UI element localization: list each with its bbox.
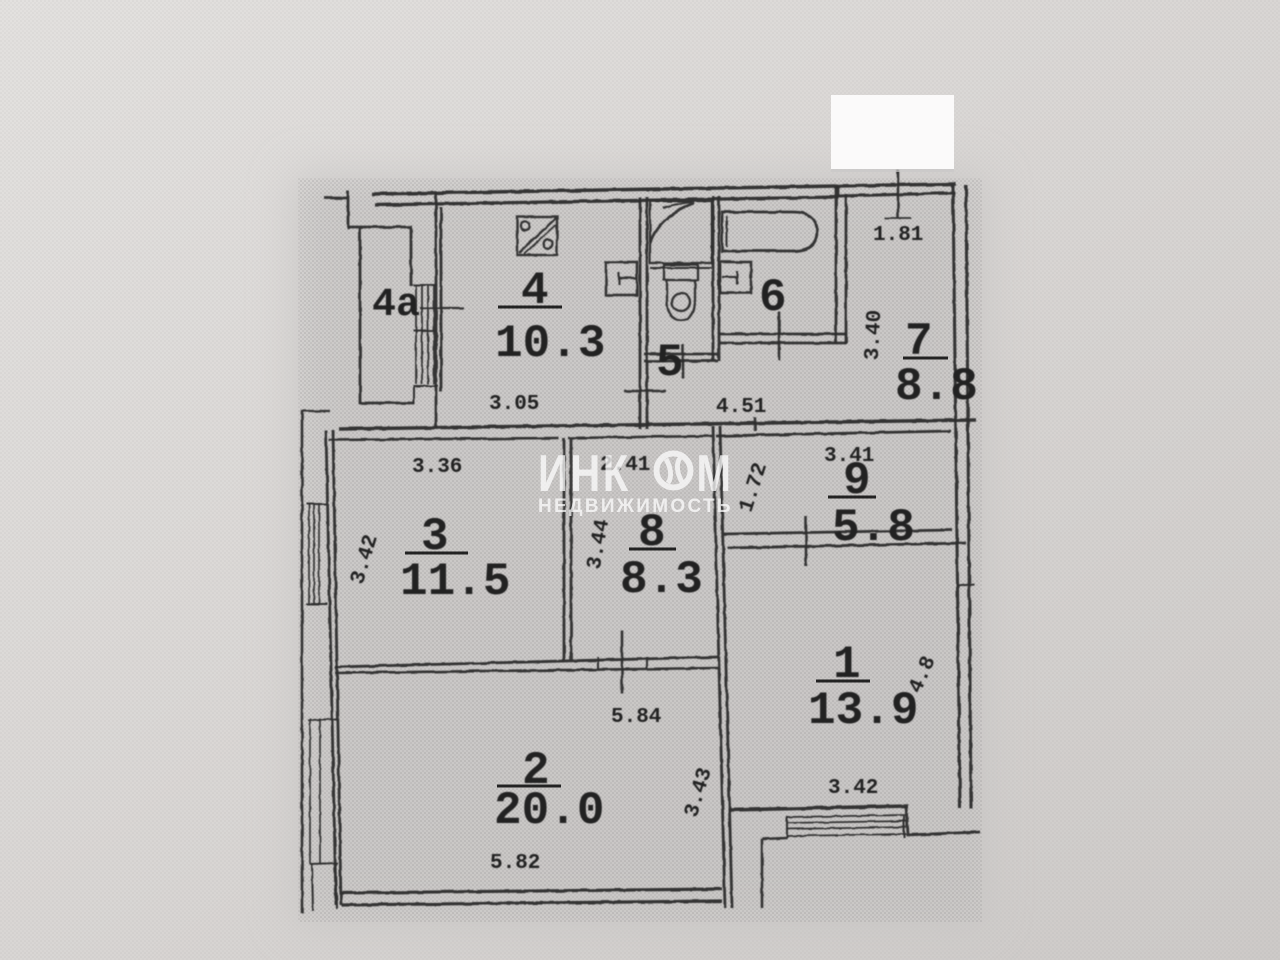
svg-text:3.36: 3.36 (412, 456, 462, 479)
svg-text:5.82: 5.82 (490, 852, 540, 875)
svg-text:8.8: 8.8 (895, 361, 978, 413)
svg-text:11.5: 11.5 (400, 556, 510, 608)
svg-text:4.51: 4.51 (716, 396, 766, 419)
svg-text:3.40: 3.40 (862, 309, 888, 361)
svg-text:4a: 4a (372, 283, 420, 328)
svg-text:20.0: 20.0 (494, 785, 604, 837)
svg-text:13.9: 13.9 (808, 685, 918, 737)
svg-text:5: 5 (656, 337, 684, 389)
svg-text:10.3: 10.3 (495, 318, 605, 370)
svg-text:3.05: 3.05 (489, 393, 539, 416)
svg-text:5.8: 5.8 (832, 502, 915, 554)
svg-text:5.84: 5.84 (611, 706, 661, 729)
svg-text:1.81: 1.81 (873, 224, 923, 247)
svg-text:М: М (696, 444, 731, 503)
svg-text:3.41: 3.41 (824, 445, 874, 468)
svg-text:8.3: 8.3 (620, 554, 703, 606)
svg-text:1: 1 (833, 639, 861, 691)
svg-text:6: 6 (759, 272, 787, 324)
svg-text:ИНК: ИНК (538, 444, 631, 503)
svg-text:4: 4 (521, 265, 549, 317)
svg-text:3.42: 3.42 (828, 777, 878, 800)
svg-text:НЕДВИЖИМОСТЬ: НЕДВИЖИМОСТЬ (538, 496, 733, 517)
